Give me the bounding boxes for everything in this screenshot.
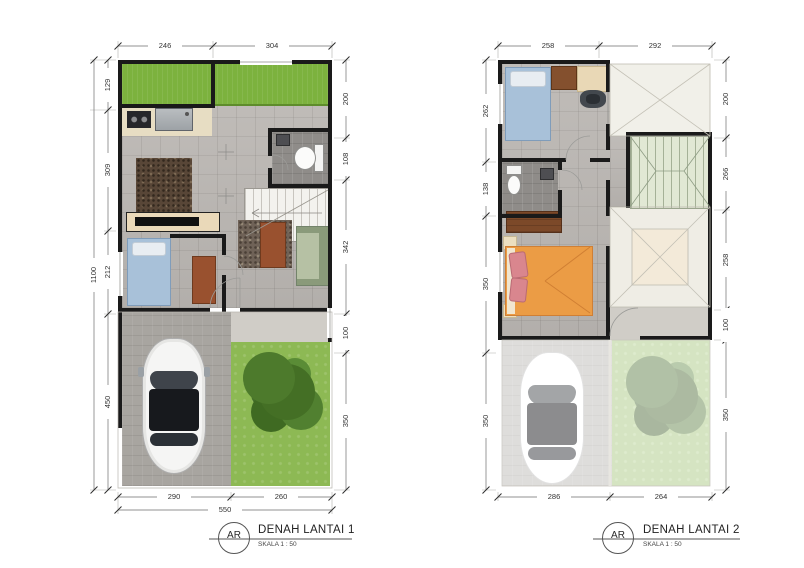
area-rug bbox=[136, 158, 192, 212]
window bbox=[497, 252, 503, 292]
dim-label: 262 bbox=[481, 94, 491, 128]
window bbox=[117, 252, 123, 296]
dim-label: 1100 bbox=[89, 258, 99, 292]
dim-label: 108 bbox=[341, 142, 351, 176]
dim-label: 129 bbox=[103, 68, 113, 102]
wall bbox=[558, 162, 562, 170]
dim-label: 350 bbox=[481, 404, 491, 438]
car-roof bbox=[527, 403, 577, 445]
wall bbox=[558, 190, 562, 218]
stair-void bbox=[630, 136, 712, 209]
tree-canopy-icon bbox=[243, 352, 295, 404]
dim-label: 100 bbox=[721, 308, 731, 342]
wall bbox=[222, 275, 226, 312]
bedroom-desk bbox=[192, 256, 216, 304]
window bbox=[497, 84, 503, 124]
wall bbox=[498, 60, 610, 64]
toilet-bowl bbox=[507, 175, 521, 195]
window bbox=[240, 59, 292, 65]
dim-label: 138 bbox=[481, 172, 491, 206]
dim-label: 350 bbox=[481, 267, 491, 301]
rear-garden-grass bbox=[122, 64, 328, 106]
wall bbox=[630, 132, 712, 136]
vanity-chair bbox=[580, 90, 606, 108]
wall bbox=[708, 132, 712, 340]
wall bbox=[170, 234, 226, 238]
wall bbox=[640, 336, 712, 340]
wall bbox=[498, 214, 562, 218]
wall bbox=[211, 64, 215, 108]
bed-pillow bbox=[132, 242, 166, 256]
dim-label: 258 bbox=[721, 243, 731, 277]
plan-title: DENAH LANTAI 1 bbox=[258, 524, 355, 536]
study-desk bbox=[577, 66, 609, 92]
single-bed bbox=[127, 238, 171, 306]
car-top-view-icon bbox=[142, 338, 206, 474]
dim-label: 290 bbox=[157, 492, 191, 502]
pillow-pink bbox=[509, 277, 528, 303]
dim-label: 350 bbox=[341, 404, 351, 438]
toilet-icon bbox=[294, 140, 324, 174]
toilet-tank bbox=[506, 165, 522, 175]
title-badge-circle: AR bbox=[602, 522, 634, 554]
wall bbox=[118, 60, 122, 428]
floorplan-sheet: 246 304 290 260 550 1100 129 309 212 450… bbox=[0, 0, 804, 568]
bath-sink-icon bbox=[276, 134, 290, 146]
car-windshield bbox=[528, 385, 576, 405]
dim-label: 246 bbox=[148, 41, 182, 51]
wall bbox=[498, 158, 566, 162]
wall bbox=[118, 60, 332, 64]
wall bbox=[268, 128, 272, 156]
pillow-pink bbox=[508, 251, 528, 279]
dim-label: 200 bbox=[341, 82, 351, 116]
dim-label: 260 bbox=[264, 492, 298, 502]
wall bbox=[118, 308, 210, 312]
wall bbox=[606, 60, 610, 92]
toilet-icon bbox=[505, 165, 523, 195]
car-mirror-left bbox=[138, 367, 144, 377]
car-rear-window bbox=[150, 433, 198, 446]
dim-label: 266 bbox=[721, 157, 731, 191]
wall bbox=[590, 158, 610, 162]
dim-label: 212 bbox=[103, 255, 113, 289]
wall bbox=[606, 246, 610, 340]
dim-label: 292 bbox=[638, 41, 672, 51]
bed-pillow bbox=[510, 71, 546, 87]
wall bbox=[268, 128, 332, 132]
tree-canopy-icon bbox=[626, 356, 678, 408]
dim-label: 550 bbox=[208, 505, 242, 515]
wall bbox=[606, 180, 610, 216]
plan-scale: SKALA 1 : 50 bbox=[643, 541, 682, 548]
dim-label: 342 bbox=[341, 230, 351, 264]
tv-console bbox=[126, 212, 220, 232]
sofa bbox=[296, 226, 330, 286]
dim-label: 350 bbox=[721, 398, 731, 432]
window bbox=[327, 308, 333, 338]
wall bbox=[268, 184, 332, 188]
wall bbox=[240, 308, 332, 312]
dim-label: 100 bbox=[341, 316, 351, 350]
bath-sink-icon bbox=[540, 168, 554, 180]
wall bbox=[626, 132, 630, 208]
car-top-view-icon bbox=[520, 352, 584, 484]
title-badge-circle: AR bbox=[218, 522, 250, 554]
dim-label: 258 bbox=[531, 41, 565, 51]
plan-scale: SKALA 1 : 50 bbox=[258, 541, 297, 548]
dim-label: 309 bbox=[103, 153, 113, 187]
car-mirror-right bbox=[204, 367, 210, 377]
dim-label: 304 bbox=[255, 41, 289, 51]
sink-icon bbox=[155, 108, 193, 131]
car-rear-window bbox=[528, 447, 576, 460]
wall bbox=[498, 336, 610, 340]
dim-label: 200 bbox=[721, 82, 731, 116]
car-windshield bbox=[150, 371, 198, 391]
dim-label: 450 bbox=[103, 385, 113, 419]
wall bbox=[606, 124, 610, 150]
plan-title: DENAH LANTAI 2 bbox=[643, 524, 740, 536]
stove-burners-icon bbox=[127, 111, 151, 128]
bedside-cabinet bbox=[551, 66, 577, 90]
sofa-seat bbox=[297, 233, 319, 279]
tv-screen bbox=[135, 217, 199, 226]
toilet-bowl bbox=[294, 146, 316, 170]
car-roof bbox=[149, 389, 199, 431]
coffee-table bbox=[260, 222, 286, 268]
dim-label: 286 bbox=[537, 492, 571, 502]
dim-label: 264 bbox=[644, 492, 678, 502]
single-bed-2 bbox=[505, 67, 551, 141]
wall bbox=[328, 60, 332, 342]
